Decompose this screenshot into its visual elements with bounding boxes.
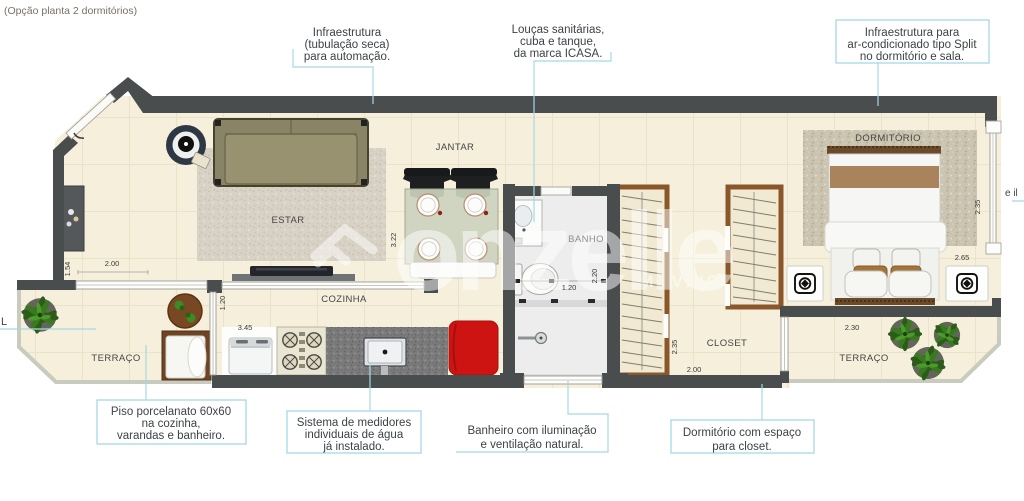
- svg-text:Sistema de medidores: Sistema de medidores: [297, 417, 412, 429]
- svg-text:individuais de água: individuais de água: [305, 429, 404, 441]
- svg-text:e il: e il: [1005, 188, 1018, 199]
- svg-text:da marca ICASA.: da marca ICASA.: [514, 48, 603, 60]
- svg-text:BANHO: BANHO: [568, 234, 604, 245]
- svg-text:e ventilação natural.: e ventilação natural.: [481, 439, 584, 451]
- svg-text:IMÓVEIS: IMÓVEIS: [632, 272, 720, 291]
- svg-text:2.00: 2.00: [687, 365, 702, 374]
- svg-text:ar-condicionado tipo Split: ar-condicionado tipo Split: [847, 39, 977, 51]
- svg-text:TERRAÇO: TERRAÇO: [91, 353, 140, 364]
- svg-text:L: L: [1, 316, 7, 328]
- svg-text:já instalado.: já instalado.: [322, 441, 384, 453]
- svg-text:cuba e tanque,: cuba e tanque,: [520, 36, 596, 48]
- svg-text:(Opção planta 2 dormitórios): (Opção planta 2 dormitórios): [4, 5, 137, 17]
- svg-text:1.20: 1.20: [218, 296, 227, 311]
- svg-text:Infraestrutura: Infraestrutura: [313, 27, 382, 39]
- svg-text:Piso porcelanato 60x60: Piso porcelanato 60x60: [111, 406, 231, 418]
- svg-text:Infraestrutura para: Infraestrutura para: [865, 27, 960, 39]
- svg-text:Dormitório com espaço: Dormitório com espaço: [683, 427, 801, 439]
- svg-text:JANTAR: JANTAR: [436, 142, 475, 153]
- svg-text:COZINHA: COZINHA: [321, 294, 367, 305]
- svg-text:Banheiro com iluminação: Banheiro com iluminação: [467, 425, 596, 437]
- svg-text:Louças sanitárias,: Louças sanitárias,: [512, 24, 605, 36]
- svg-text:2.35: 2.35: [973, 200, 982, 215]
- svg-text:(tubulação seca): (tubulação seca): [304, 39, 389, 51]
- svg-text:para automação.: para automação.: [304, 51, 390, 63]
- svg-text:TERRAÇO: TERRAÇO: [839, 353, 888, 364]
- svg-text:para closet.: para closet.: [712, 441, 771, 453]
- svg-text:CLOSET: CLOSET: [707, 338, 747, 349]
- svg-text:1.20: 1.20: [562, 283, 577, 292]
- svg-text:2.65: 2.65: [955, 253, 970, 262]
- svg-text:ESTAR: ESTAR: [272, 215, 305, 226]
- svg-text:3.22: 3.22: [389, 233, 398, 248]
- svg-text:DORMITÓRIO: DORMITÓRIO: [855, 133, 921, 144]
- svg-text:2.00: 2.00: [105, 259, 120, 268]
- svg-text:1.54: 1.54: [63, 262, 72, 277]
- svg-text:3.45: 3.45: [238, 323, 253, 332]
- svg-text:2.20: 2.20: [590, 269, 599, 284]
- svg-text:varandas e banheiro.: varandas e banheiro.: [117, 430, 225, 442]
- svg-text:2.30: 2.30: [845, 323, 860, 332]
- svg-text:no dormitório e sala.: no dormitório e sala.: [860, 51, 964, 63]
- svg-text:onzelle: onzelle: [393, 190, 733, 314]
- svg-text:2.35: 2.35: [670, 340, 679, 355]
- svg-text:na cozinha,: na cozinha,: [142, 418, 201, 430]
